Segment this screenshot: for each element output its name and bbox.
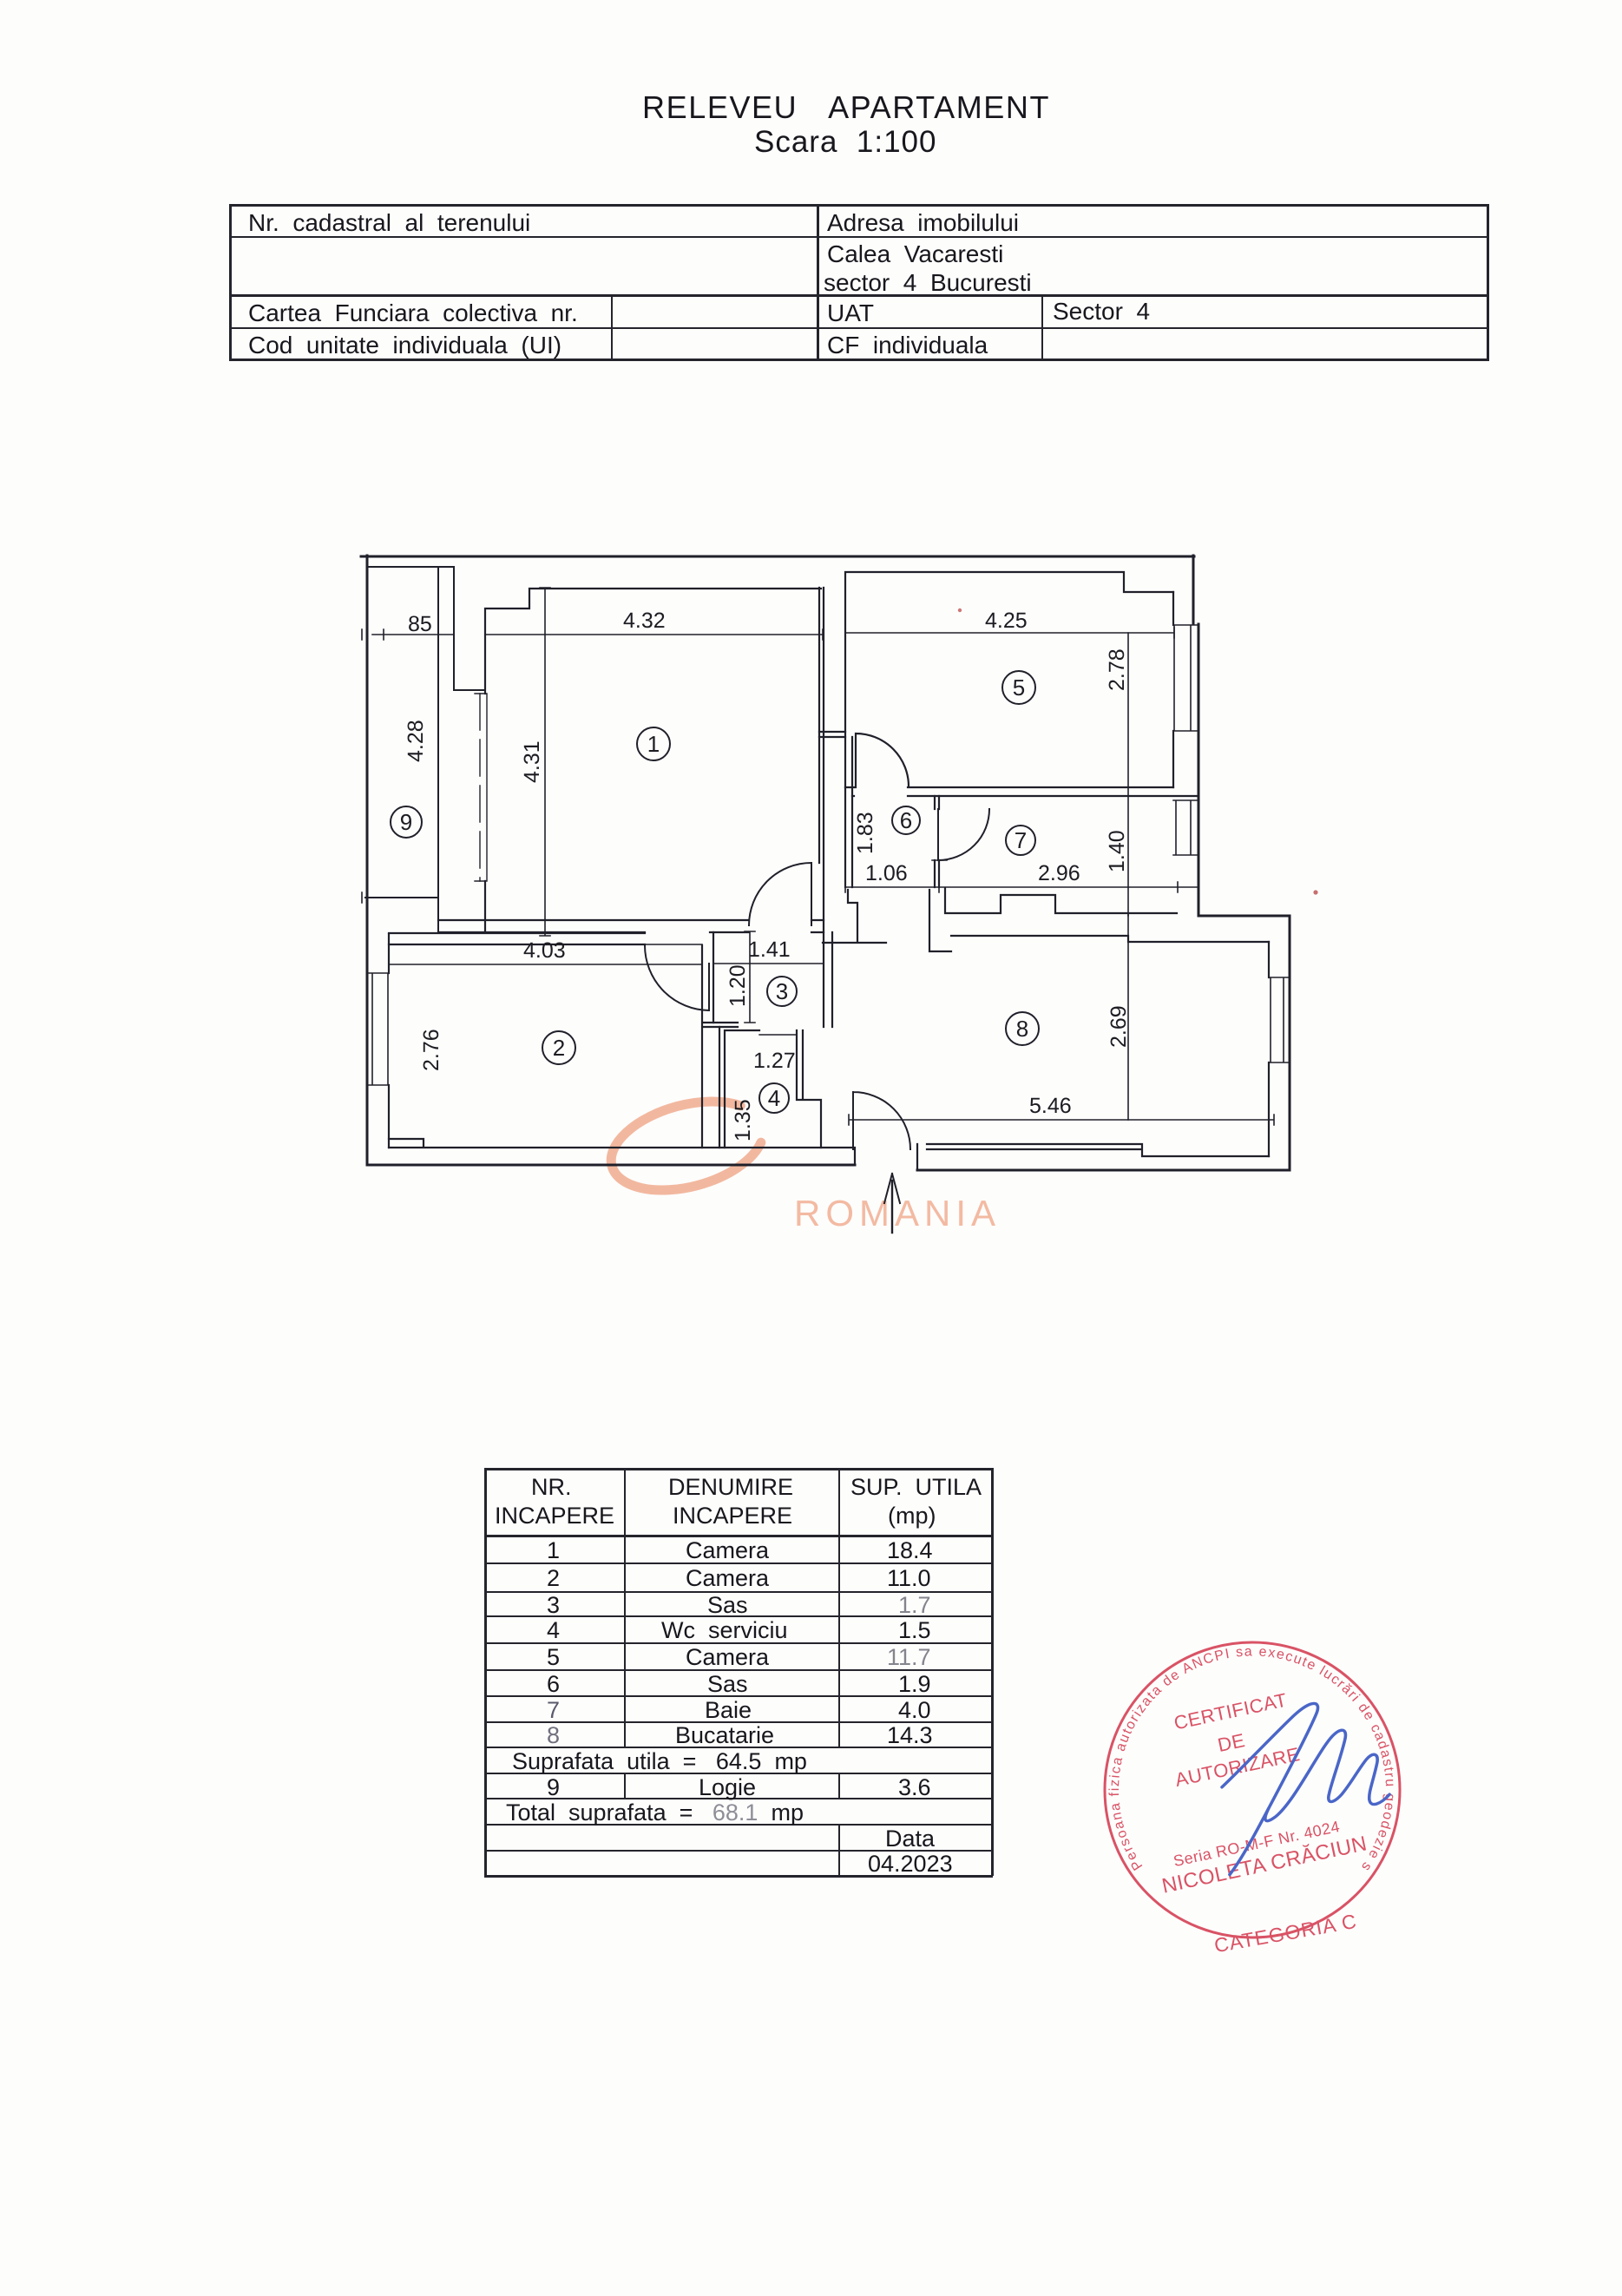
svg-text:1.41: 1.41: [748, 937, 791, 962]
svg-text:5.46: 5.46: [1029, 1094, 1072, 1118]
svg-text:CERTIFICAT: CERTIFICAT: [1172, 1689, 1289, 1734]
svg-text:2: 2: [553, 1035, 565, 1061]
svg-text:6: 6: [900, 807, 912, 833]
svg-text:DE: DE: [1216, 1729, 1247, 1756]
svg-text:4: 4: [768, 1085, 780, 1111]
svg-text:2.78: 2.78: [1105, 648, 1129, 691]
svg-text:7: 7: [1015, 827, 1027, 853]
svg-text:2.96: 2.96: [1038, 861, 1080, 885]
svg-text:85: 85: [408, 612, 432, 636]
svg-text:1.40: 1.40: [1105, 830, 1129, 872]
svg-text:2.76: 2.76: [419, 1029, 443, 1071]
svg-text:2.69: 2.69: [1107, 1005, 1131, 1048]
svg-text:8: 8: [1016, 1016, 1028, 1042]
svg-text:1.06: 1.06: [865, 861, 908, 885]
svg-text:1: 1: [647, 731, 660, 757]
svg-text:CATEGORIA C: CATEGORIA C: [1212, 1910, 1358, 1957]
svg-text:1.83: 1.83: [853, 812, 877, 854]
svg-text:4.32: 4.32: [623, 609, 666, 633]
svg-text:5: 5: [1013, 674, 1025, 701]
svg-text:4.31: 4.31: [520, 740, 544, 783]
svg-text:4.25: 4.25: [985, 609, 1028, 633]
svg-text:4.28: 4.28: [404, 720, 428, 762]
svg-text:1.20: 1.20: [726, 964, 750, 1007]
svg-text:3: 3: [776, 978, 788, 1004]
svg-text:1.27: 1.27: [753, 1049, 796, 1073]
svg-text:ROMANIA: ROMANIA: [794, 1193, 1001, 1234]
svg-text:4.03: 4.03: [523, 938, 566, 963]
svg-text:9: 9: [400, 809, 412, 835]
svg-text:1.35: 1.35: [731, 1099, 755, 1141]
